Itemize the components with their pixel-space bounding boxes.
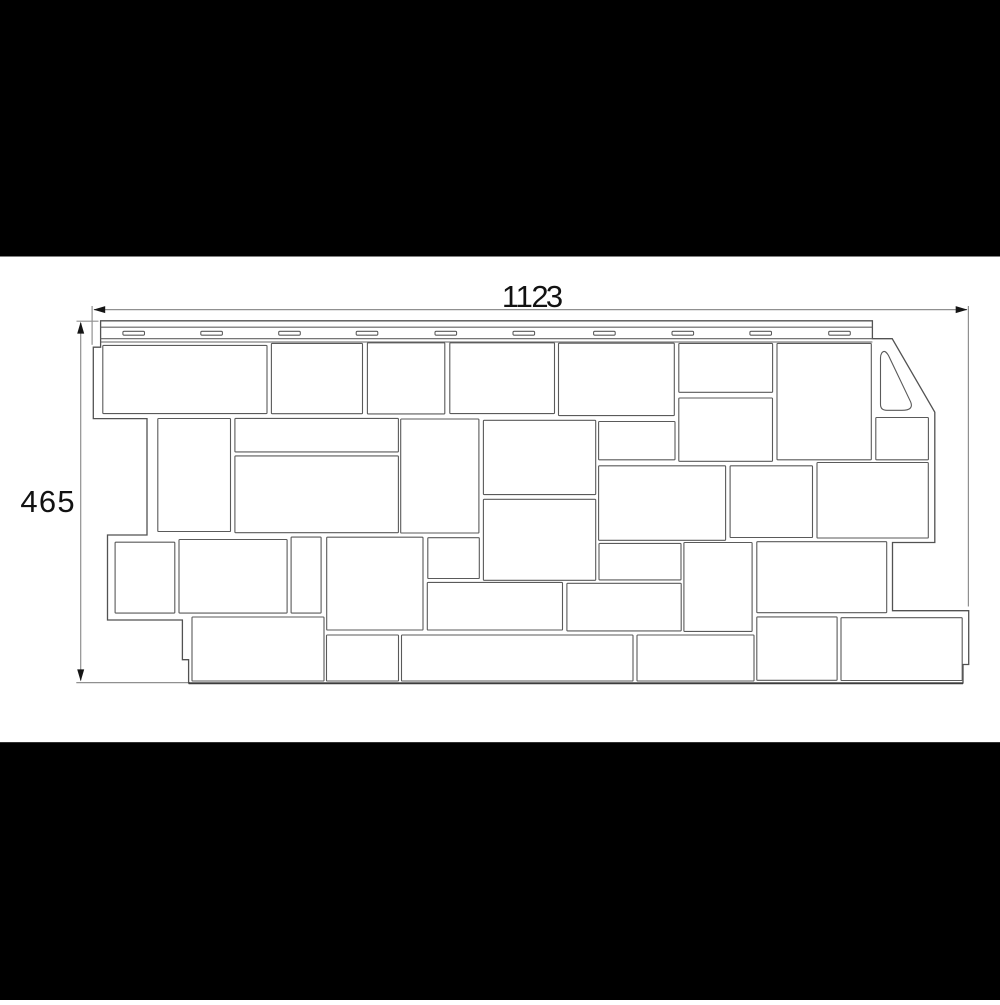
svg-text:3: 3 — [546, 279, 563, 314]
svg-text:6: 6 — [39, 484, 56, 519]
svg-text:1: 1 — [516, 279, 533, 314]
svg-text:4: 4 — [20, 484, 37, 519]
svg-text:5: 5 — [57, 484, 74, 519]
